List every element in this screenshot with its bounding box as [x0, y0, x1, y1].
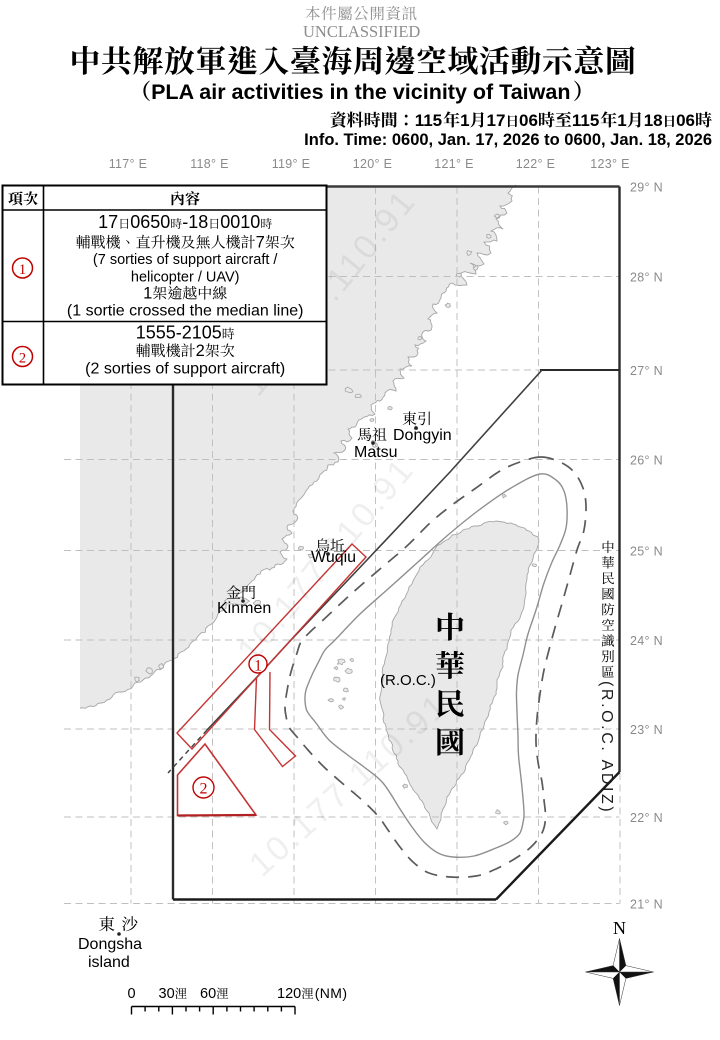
svg-text:23° N: 23° N: [630, 723, 663, 737]
svg-text:30: 30: [159, 986, 175, 1002]
svg-text:1: 1: [19, 262, 26, 278]
svg-text:0010: 0010: [220, 212, 260, 232]
svg-text:(NM): (NM): [315, 985, 348, 1001]
svg-text:115: 115: [415, 111, 442, 130]
svg-text:(R.O.C. ADIZ): (R.O.C. ADIZ): [598, 681, 615, 814]
svg-text:29° N: 29° N: [630, 181, 663, 195]
svg-text:helicopter / UAV): helicopter / UAV): [131, 270, 240, 286]
svg-text:(1 sortie crossed the median l: (1 sortie crossed the median line): [67, 303, 304, 320]
svg-text:06: 06: [519, 111, 538, 130]
svg-text:120: 120: [277, 986, 301, 1002]
svg-text:1: 1: [617, 111, 626, 130]
svg-text:26° N: 26° N: [630, 454, 663, 468]
svg-text:120° E: 120° E: [353, 157, 392, 171]
svg-text:N: N: [613, 918, 626, 938]
svg-text:1: 1: [143, 285, 152, 303]
svg-text:18: 18: [644, 111, 663, 130]
svg-text:118° E: 118° E: [190, 157, 229, 171]
svg-text:2: 2: [196, 342, 205, 360]
svg-text:1555-2105: 1555-2105: [136, 323, 222, 343]
svg-text:Info. Time: 0600, Jan. 17, 202: Info. Time: 0600, Jan. 17, 2026 to 0600,…: [304, 131, 712, 149]
svg-text:18: 18: [188, 212, 208, 232]
svg-text:60: 60: [200, 986, 216, 1002]
svg-text:Dongyin: Dongyin: [393, 427, 452, 444]
svg-text:UNCLASSIFIED: UNCLASSIFIED: [303, 22, 420, 41]
svg-text:2: 2: [200, 781, 208, 798]
svg-text:island: island: [88, 954, 130, 971]
svg-text:0650: 0650: [130, 212, 170, 232]
svg-text:21° N: 21° N: [630, 898, 663, 912]
svg-text:122° E: 122° E: [516, 157, 555, 171]
svg-text:1: 1: [460, 111, 469, 130]
svg-text:115: 115: [572, 111, 599, 130]
svg-text:28° N: 28° N: [630, 271, 663, 285]
svg-text:PLA air activities in the vici: PLA air activities in the vicinity of Ta…: [151, 80, 570, 104]
svg-text:17: 17: [98, 212, 118, 232]
svg-text:(R.O.C.): (R.O.C.): [380, 672, 436, 689]
svg-text:Dongsha: Dongsha: [78, 936, 142, 953]
svg-text:121° E: 121° E: [434, 157, 473, 171]
svg-text:(7 sorties of support aircraft: (7 sorties of support aircraft /: [93, 252, 279, 268]
svg-text:22° N: 22° N: [630, 811, 663, 825]
svg-text:06: 06: [676, 111, 695, 130]
svg-text:7: 7: [256, 234, 265, 252]
svg-text:27° N: 27° N: [630, 364, 663, 378]
svg-text:2: 2: [19, 351, 26, 367]
svg-text:(2 sorties of support aircraft: (2 sorties of support aircraft): [85, 361, 285, 378]
svg-text:25° N: 25° N: [630, 545, 663, 559]
svg-text:24° N: 24° N: [630, 634, 663, 648]
svg-text:119° E: 119° E: [272, 157, 311, 171]
svg-text:17: 17: [487, 111, 506, 130]
svg-text:0: 0: [127, 986, 135, 1002]
svg-text:117° E: 117° E: [109, 157, 148, 171]
svg-text:123° E: 123° E: [590, 157, 629, 171]
